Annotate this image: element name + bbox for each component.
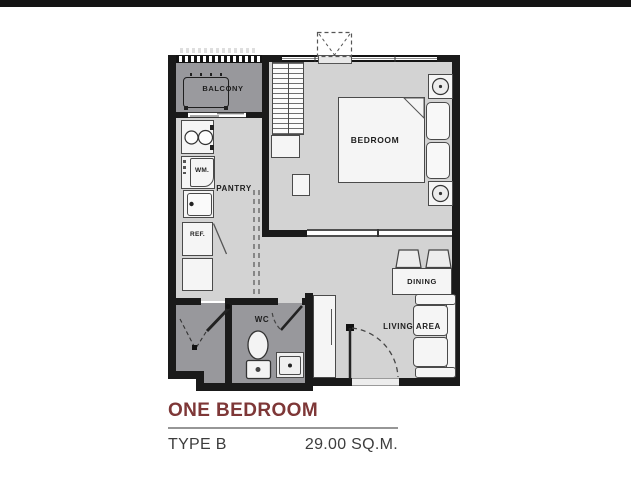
sofa-cushion-bottom xyxy=(413,337,448,367)
wc-label: WC xyxy=(248,316,276,324)
sofa-cushion-top xyxy=(413,305,448,336)
nightstand-top xyxy=(428,74,453,99)
balcony-sliding-door xyxy=(188,112,246,118)
wall-wc-top-b xyxy=(227,298,278,305)
pantry-label: PANTRY xyxy=(214,185,254,193)
top-letterbox-bar xyxy=(0,0,631,7)
caption-divider xyxy=(168,427,398,429)
kitchen-sink-basin xyxy=(187,193,212,216)
wall-bedroom-bottom xyxy=(262,230,307,237)
ac-condenser-foot-left xyxy=(184,106,188,110)
wardrobe xyxy=(272,62,304,135)
bedroom-label: BEDROOM xyxy=(345,136,405,145)
ref-label: REF. xyxy=(183,232,212,239)
living-area-label: LIVING AREA xyxy=(380,323,444,331)
caption-row: TYPE B 29.00 SQ.M. xyxy=(168,436,398,454)
kitchen-counter xyxy=(182,258,213,291)
wall-bottom-entry-left xyxy=(305,378,352,386)
window-center-line xyxy=(282,58,437,59)
entry-threshold xyxy=(352,378,399,386)
wall-balcony-bottom-left xyxy=(176,112,188,118)
pillow-top xyxy=(426,102,450,140)
wall-shower-wc-divider xyxy=(225,298,232,383)
ac-condenser-foot-right xyxy=(224,106,228,110)
wall-bottom-wc xyxy=(196,383,313,391)
wall-wc-right xyxy=(305,293,313,388)
ac-ledge xyxy=(318,55,352,64)
wall-balcony-bottom-right xyxy=(246,112,262,118)
nightstand-bottom xyxy=(428,181,453,206)
sofa-armrest-top xyxy=(415,294,456,305)
balcony-label: BALCONY xyxy=(196,85,250,93)
area-label: 29.00 SQ.M. xyxy=(305,436,398,454)
ac-condenser-ticks xyxy=(190,73,222,76)
wardrobe-divider xyxy=(288,63,289,134)
wall-wc-top-a xyxy=(168,298,201,305)
cooktop-knob-top xyxy=(210,125,214,130)
floor-plan-page: BALCONY PANTRY BEDROOM WM. REF. WC DININ… xyxy=(0,0,631,480)
bedroom-window xyxy=(282,55,437,62)
wardrobe-base-cabinet xyxy=(271,135,300,158)
wm-label: WM. xyxy=(189,168,215,175)
cooktop-knob-bottom xyxy=(210,145,214,150)
refrigerator xyxy=(182,222,213,256)
wall-kitchen-bedroom-divider xyxy=(262,62,269,237)
balcony-railing xyxy=(176,55,262,63)
ac-outdoor-dashed-box xyxy=(318,33,352,57)
bedroom-stool xyxy=(292,174,310,196)
dining-label: DINING xyxy=(397,278,447,286)
type-label: TYPE B xyxy=(168,436,227,454)
pillow-bottom xyxy=(426,142,450,179)
vanity-basin xyxy=(279,356,301,375)
wall-left xyxy=(168,55,176,379)
sofa-armrest-bottom xyxy=(415,367,456,378)
fineprint-watermark xyxy=(180,48,258,53)
caption-title: ONE BEDROOM xyxy=(168,400,318,422)
entry-cabinet xyxy=(313,295,336,378)
bedroom-living-partition xyxy=(307,229,452,237)
washing-machine-controls xyxy=(183,160,186,174)
wall-bottom-entry-right xyxy=(399,378,460,386)
entry-cabinet-handle xyxy=(331,309,332,345)
